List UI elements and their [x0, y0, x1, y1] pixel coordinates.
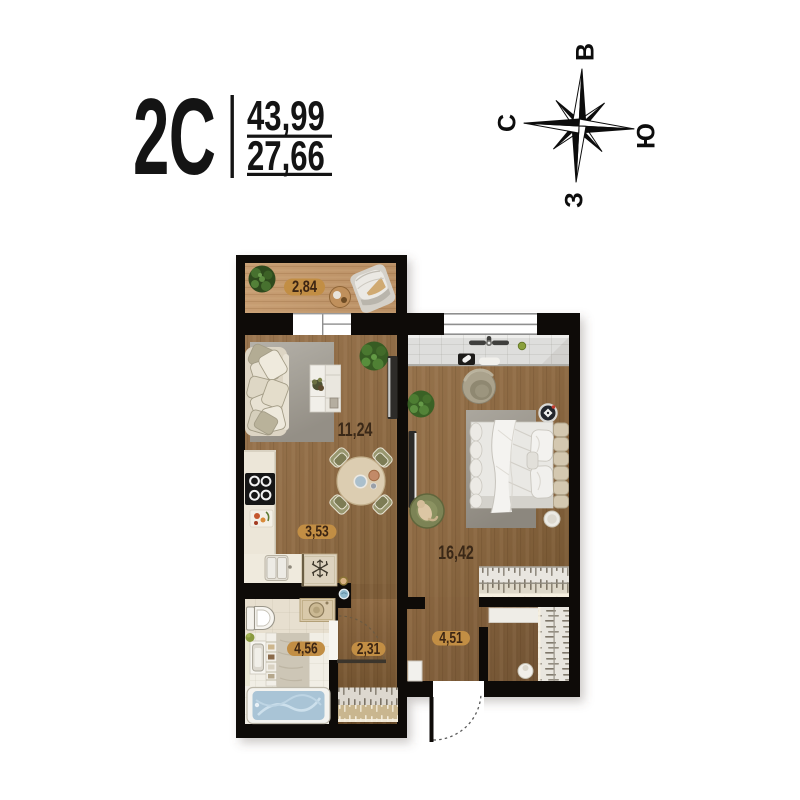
svg-text:Ю: Ю: [633, 123, 661, 149]
svg-text:11,24: 11,24: [338, 419, 373, 440]
svg-text:27,66: 27,66: [247, 132, 325, 179]
svg-text:3,53: 3,53: [305, 522, 329, 540]
svg-text:2,84: 2,84: [292, 279, 318, 297]
svg-text:2С: 2С: [133, 77, 215, 198]
svg-text:З: З: [561, 192, 589, 208]
svg-text:4,51: 4,51: [439, 629, 463, 647]
svg-text:4,56: 4,56: [294, 639, 318, 657]
svg-text:16,42: 16,42: [438, 542, 474, 563]
svg-text:С: С: [494, 114, 522, 132]
svg-text:2,31: 2,31: [357, 639, 381, 657]
svg-text:В: В: [572, 43, 600, 61]
